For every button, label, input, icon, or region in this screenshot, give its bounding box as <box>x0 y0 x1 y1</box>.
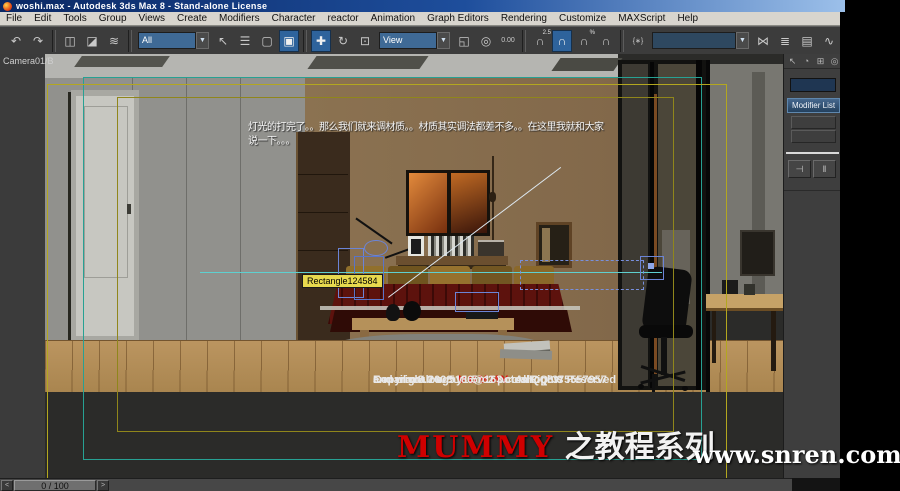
menu-edit[interactable]: Edit <box>28 13 57 24</box>
select-and-rotate-icon: ↻ <box>338 34 348 48</box>
select-and-rotate-button[interactable]: ↻ <box>333 30 353 52</box>
tutorial-note-line1: 灯光的打完了。。那么我们就来调材质。。材质其实调法都差不多。。在这里我就和大家 <box>248 118 604 133</box>
undo-icon: ↶ <box>11 34 21 48</box>
select-object-icon: ↖ <box>218 34 228 48</box>
chevron-down-icon[interactable]: ▼ <box>196 32 209 49</box>
toolbar-separator <box>303 30 307 52</box>
menu-views[interactable]: Views <box>133 13 172 24</box>
toolbar-separator <box>522 30 526 52</box>
selection-filter-value[interactable]: All <box>138 32 196 49</box>
bind-to-space-warp-icon: ≋ <box>109 34 119 48</box>
menu-bar: FileEditToolsGroupViewsCreateModifiersCh… <box>0 12 840 26</box>
snaps-toggle-icon: ∩ <box>536 34 545 48</box>
menu-create[interactable]: Create <box>171 13 213 24</box>
curve-editor-button[interactable]: ∿ <box>819 30 839 52</box>
copyright-line3: E-mail:malong5186@163.com QQ:375557957 <box>373 374 607 387</box>
select-and-move-icon: ✚ <box>316 34 326 48</box>
tab-modify[interactable]: ◔ <box>801 56 812 67</box>
menu-help[interactable]: Help <box>671 13 704 24</box>
window-crossing-toggle-icon: ▣ <box>283 34 294 48</box>
angle-snap-toggle-icon: ∩ <box>558 34 567 48</box>
previous-frame-button[interactable]: < <box>1 480 13 491</box>
keyboard-shortcut-override-icon: 0.00 <box>501 37 515 44</box>
title-bar: woshi.max - Autodesk 3ds Max 8 - Stand-a… <box>0 0 845 12</box>
curve-editor-icon: ∿ <box>824 34 834 48</box>
bind-to-space-warp-button[interactable]: ≋ <box>104 30 124 52</box>
camera-viewport[interactable]: Camera01/B <box>0 54 783 478</box>
command-panel: ↖◔⊞◎ Modifier List ⊣ ‖ <box>783 54 840 478</box>
right-picture <box>740 230 775 276</box>
chevron-down-icon[interactable]: ▼ <box>437 32 450 49</box>
select-and-move-button[interactable]: ✚ <box>311 30 331 52</box>
menu-rendering[interactable]: Rendering <box>495 13 553 24</box>
ceiling-light-fixture <box>551 58 622 71</box>
time-slider-bar: < 0 / 100 > <box>0 478 792 491</box>
unlink-selection-button[interactable]: ◪ <box>82 30 102 52</box>
named-selection-sets-dropdown[interactable]: ▼ <box>652 32 749 49</box>
rect-selection-region-button[interactable]: ▢ <box>257 30 277 52</box>
menu-maxscript[interactable]: MAXScript <box>612 13 671 24</box>
tab-motion[interactable]: ◎ <box>829 56 840 67</box>
app-icon <box>3 2 12 11</box>
select-and-link-icon: ◫ <box>64 34 75 48</box>
redo-icon: ↷ <box>33 34 43 48</box>
select-and-manipulate-button[interactable]: ◎ <box>476 30 496 52</box>
toolbar-separator <box>128 30 132 52</box>
reference-coordinate-system-dropdown[interactable]: View▼ <box>379 32 450 49</box>
select-object-button[interactable]: ↖ <box>213 30 233 52</box>
menu-graph-editors[interactable]: Graph Editors <box>421 13 495 24</box>
keyboard-shortcut-override-button[interactable]: 0.00 <box>498 30 518 52</box>
select-and-uniform-scale-icon: ⊡ <box>360 34 370 48</box>
select-and-uniform-scale-button[interactable]: ⊡ <box>355 30 375 52</box>
panel-divider <box>784 190 841 191</box>
watermark-site: www.snren.com <box>693 440 900 469</box>
selection-filter-dropdown[interactable]: All▼ <box>138 32 209 49</box>
tab-create[interactable]: ↖ <box>787 56 798 67</box>
modifier-list-dropdown[interactable]: Modifier List <box>787 98 840 113</box>
desk-leg <box>771 311 776 371</box>
menu-customize[interactable]: Customize <box>553 13 612 24</box>
command-panel-tabs: ↖◔⊞◎ <box>784 54 841 69</box>
edit-named-selection-sets-button[interactable]: {∗} <box>628 30 648 52</box>
viewport-label[interactable]: Camera01/B <box>3 56 54 66</box>
object-name-field[interactable] <box>790 78 836 92</box>
right-black-band <box>840 12 900 491</box>
use-pivot-point-center-button[interactable]: ◱ <box>454 30 474 52</box>
light-wireframe <box>455 292 499 312</box>
reference-coordinate-system-value[interactable]: View <box>379 32 437 49</box>
light-wireframe <box>364 240 388 256</box>
stack-divider <box>786 152 839 154</box>
ceiling-light-fixture <box>74 56 170 67</box>
unlink-selection-icon: ◪ <box>86 34 97 48</box>
select-and-manipulate-icon: ◎ <box>481 34 491 48</box>
desk-item <box>744 284 755 295</box>
menu-tools[interactable]: Tools <box>57 13 92 24</box>
modifier-stack-row[interactable] <box>791 130 836 143</box>
next-frame-button[interactable]: > <box>97 480 109 491</box>
select-by-name-button[interactable]: ☰ <box>235 30 255 52</box>
light-wireframe-dot <box>648 263 654 269</box>
toolbar-separator <box>620 30 624 52</box>
rect-selection-region-icon: ▢ <box>261 34 272 48</box>
menu-character[interactable]: Character <box>266 13 322 24</box>
snaps-toggle-button[interactable]: ∩2.5 <box>530 30 550 52</box>
snaps-toggle-mode-label: 2.5 <box>543 30 551 36</box>
layer-manager-icon: ▤ <box>801 34 812 48</box>
spinner-snap-toggle-button[interactable]: ∩ <box>596 30 616 52</box>
show-end-result-button[interactable]: ‖ <box>813 160 836 178</box>
layer-manager-button[interactable]: ▤ <box>797 30 817 52</box>
menu-file[interactable]: File <box>0 13 28 24</box>
percent-snap-toggle-mode-label: % <box>590 30 595 36</box>
main-toolbar: ↶↷◫◪≋All▼↖☰▢▣✚↻⊡View▼◱◎0.00∩2.5∩∩%∩{∗}▼⋈… <box>0 26 840 54</box>
menu-group[interactable]: Group <box>93 13 133 24</box>
menu-reactor[interactable]: reactor <box>322 13 365 24</box>
align-button[interactable]: ≣ <box>775 30 795 52</box>
mirror-icon: ⋈ <box>757 34 769 48</box>
spinner-snap-toggle-icon: ∩ <box>602 34 611 48</box>
time-slider-handle[interactable]: 0 / 100 <box>14 480 96 491</box>
menu-animation[interactable]: Animation <box>365 13 421 24</box>
time-slider-track-end <box>792 478 840 491</box>
percent-snap-toggle-icon: ∩ <box>580 34 589 48</box>
modifier-stack-row[interactable] <box>791 116 836 129</box>
align-icon: ≣ <box>780 34 790 48</box>
pin-stack-button[interactable]: ⊣ <box>788 160 811 178</box>
window-title: woshi.max - Autodesk 3ds Max 8 - Stand-a… <box>16 1 267 11</box>
use-pivot-point-center-icon: ◱ <box>458 34 469 48</box>
chevron-down-icon[interactable]: ▼ <box>736 32 749 49</box>
ceiling-light-fixture <box>307 56 428 69</box>
object-tooltip: Rectangle124584 <box>302 274 383 288</box>
redo-button[interactable]: ↷ <box>28 30 48 52</box>
watermark-title: MUMMY 之教程系列 <box>397 422 715 466</box>
edit-named-selection-sets-icon: {∗} <box>633 37 644 45</box>
tutorial-note-line2: 说一下。。。 <box>248 132 295 147</box>
select-by-name-icon: ☰ <box>240 34 251 48</box>
right-black-band <box>845 0 900 12</box>
menu-modifiers[interactable]: Modifiers <box>213 13 266 24</box>
mirror-button[interactable]: ⋈ <box>753 30 773 52</box>
angle-snap-toggle-button[interactable]: ∩ <box>552 30 572 52</box>
viewport-left-margin <box>0 54 46 478</box>
watermark-brand: MUMMY <box>397 430 554 465</box>
select-and-link-button[interactable]: ◫ <box>60 30 80 52</box>
window-crossing-toggle-button[interactable]: ▣ <box>279 30 299 52</box>
percent-snap-toggle-button[interactable]: ∩% <box>574 30 594 52</box>
tab-hierarchy[interactable]: ⊞ <box>815 56 826 67</box>
toolbar-separator <box>52 30 56 52</box>
undo-button[interactable]: ↶ <box>6 30 26 52</box>
named-selection-sets-value[interactable] <box>652 32 736 49</box>
selection-rect-dashed <box>520 260 644 290</box>
